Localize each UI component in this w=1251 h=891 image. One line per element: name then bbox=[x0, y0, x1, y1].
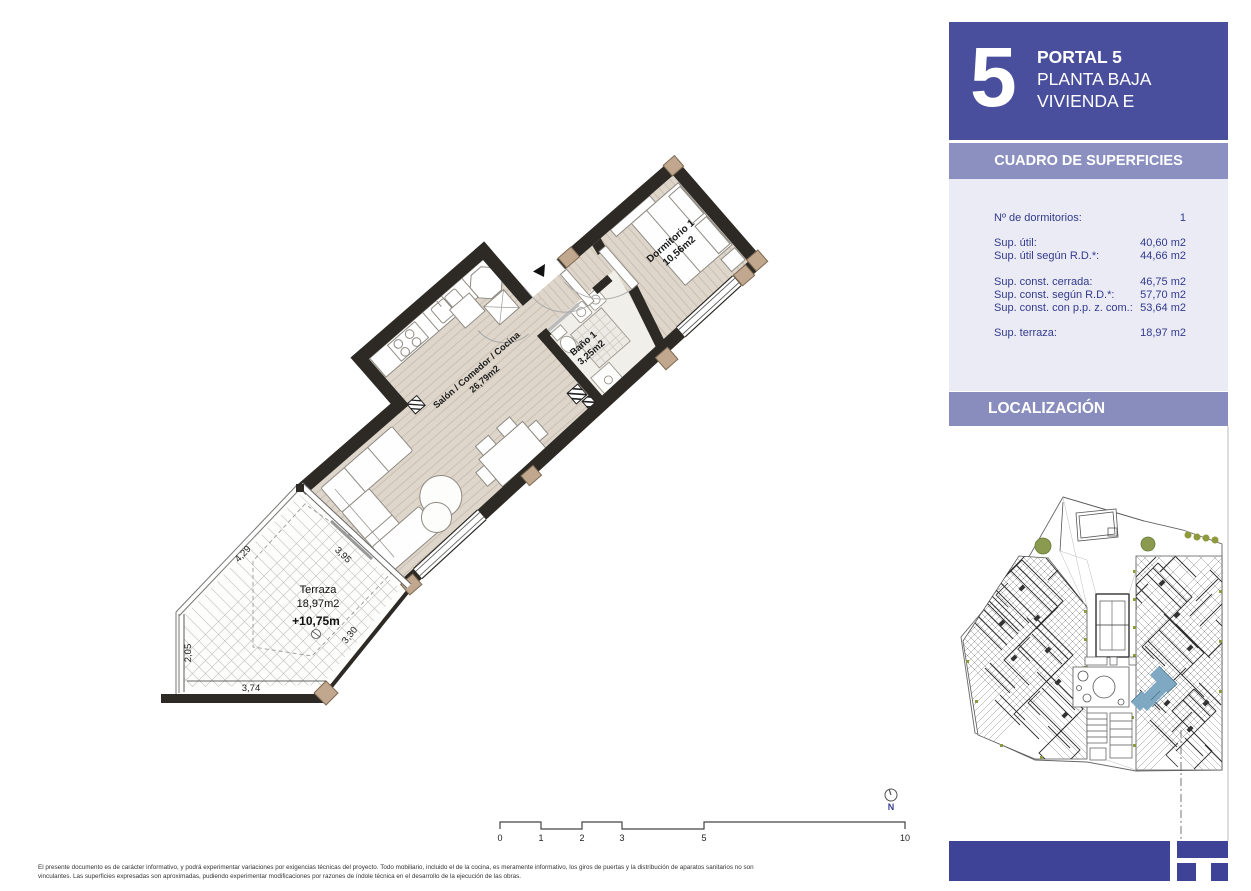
svg-text:1: 1 bbox=[538, 833, 543, 843]
svg-text:3,74: 3,74 bbox=[242, 683, 261, 694]
svg-text:5: 5 bbox=[701, 833, 706, 843]
svg-text:+10,75m: +10,75m bbox=[292, 614, 340, 628]
svg-text:vinculantes. Las superficies e: vinculantes. Las superficies expresadas … bbox=[38, 873, 521, 880]
svg-text:0: 0 bbox=[497, 833, 502, 843]
svg-text:Terraza: Terraza bbox=[300, 584, 338, 596]
svg-text:3: 3 bbox=[619, 833, 624, 843]
svg-text:N: N bbox=[888, 802, 895, 812]
svg-text:18,97m2: 18,97m2 bbox=[297, 598, 340, 610]
svg-text:2: 2 bbox=[579, 833, 584, 843]
svg-text:10: 10 bbox=[900, 833, 910, 843]
svg-text:El presente documento es de ca: El presente documento es de carácter inf… bbox=[38, 864, 754, 871]
svg-text:2,05: 2,05 bbox=[183, 644, 194, 663]
